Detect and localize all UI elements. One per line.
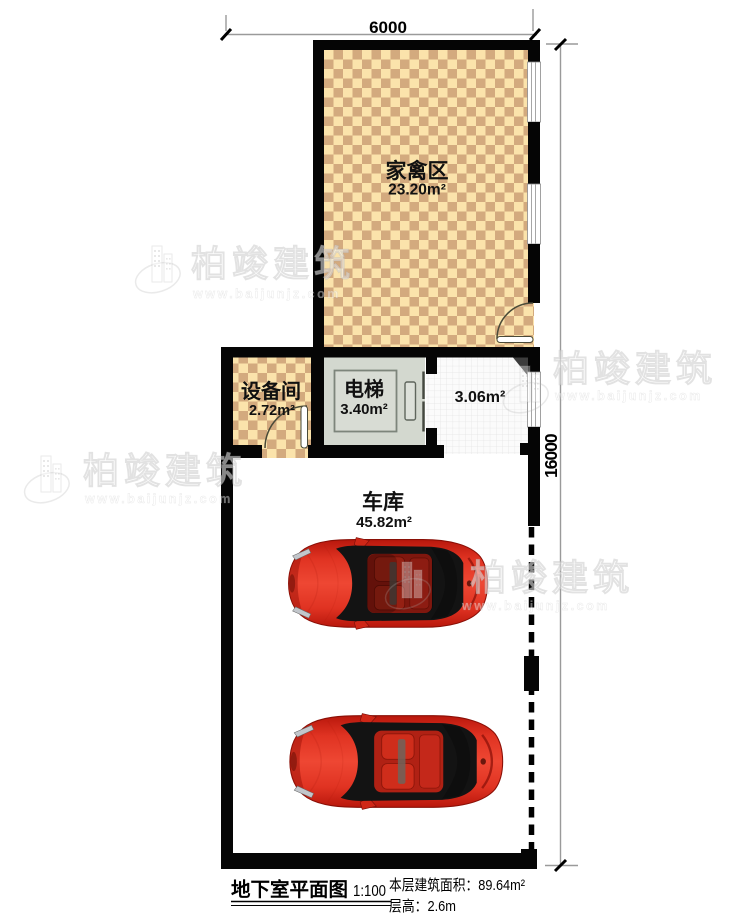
- svg-text:www.baijunjz.com: www.baijunjz.com: [461, 599, 610, 613]
- svg-text:柏竣建筑: 柏竣建筑: [83, 450, 247, 491]
- svg-text:柏竣建筑: 柏竣建筑: [191, 243, 355, 284]
- svg-text:地下室平面图: 地下室平面图: [231, 878, 348, 901]
- svg-text:1:100: 1:100: [353, 883, 386, 900]
- svg-text:电梯: 电梯: [344, 377, 384, 401]
- svg-text:本层建筑面积：89.64m²: 本层建筑面积：89.64m²: [389, 877, 525, 894]
- svg-text:www.baijunjz.com: www.baijunjz.com: [554, 389, 703, 403]
- svg-text:45.82m²: 45.82m²: [356, 514, 412, 531]
- svg-text:2.72m²: 2.72m²: [249, 403, 295, 419]
- svg-text:车库: 车库: [362, 490, 404, 514]
- svg-text:www.baijunjz.com: www.baijunjz.com: [84, 492, 233, 506]
- svg-text:www.baijunjz.com: www.baijunjz.com: [192, 287, 341, 301]
- svg-text:6000: 6000: [369, 18, 407, 37]
- svg-text:层高：2.6m: 层高：2.6m: [389, 898, 456, 915]
- svg-text:家禽区: 家禽区: [386, 159, 449, 183]
- svg-text:柏竣建筑: 柏竣建筑: [553, 348, 717, 389]
- svg-text:柏竣建筑: 柏竣建筑: [470, 557, 634, 598]
- svg-text:设备间: 设备间: [241, 379, 301, 403]
- svg-text:23.20m²: 23.20m²: [388, 182, 446, 199]
- svg-text:3.06m²: 3.06m²: [455, 389, 506, 406]
- svg-text:3.40m²: 3.40m²: [340, 401, 388, 418]
- svg-text:16000: 16000: [541, 433, 561, 478]
